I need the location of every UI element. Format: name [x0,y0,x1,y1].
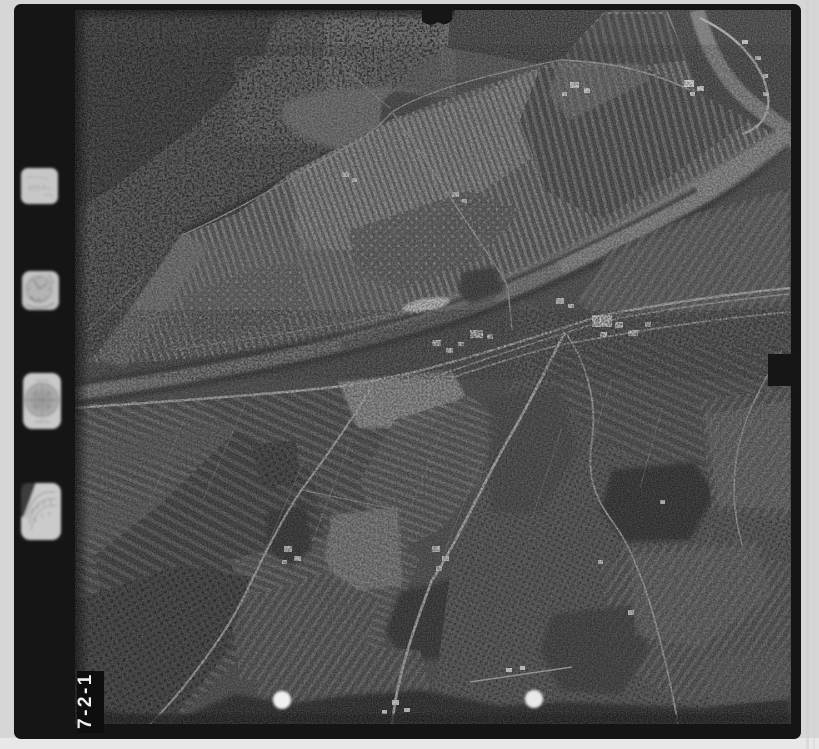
svg-text:2: 2 [41,514,44,520]
svg-text:x100 m: x100 m [35,419,50,424]
svg-text:ALT m: ALT m [36,378,49,383]
svg-text:4: 4 [34,518,37,524]
svg-text:7-2-1: 7-2-1 [75,672,96,729]
svg-text:0: 0 [48,512,51,518]
